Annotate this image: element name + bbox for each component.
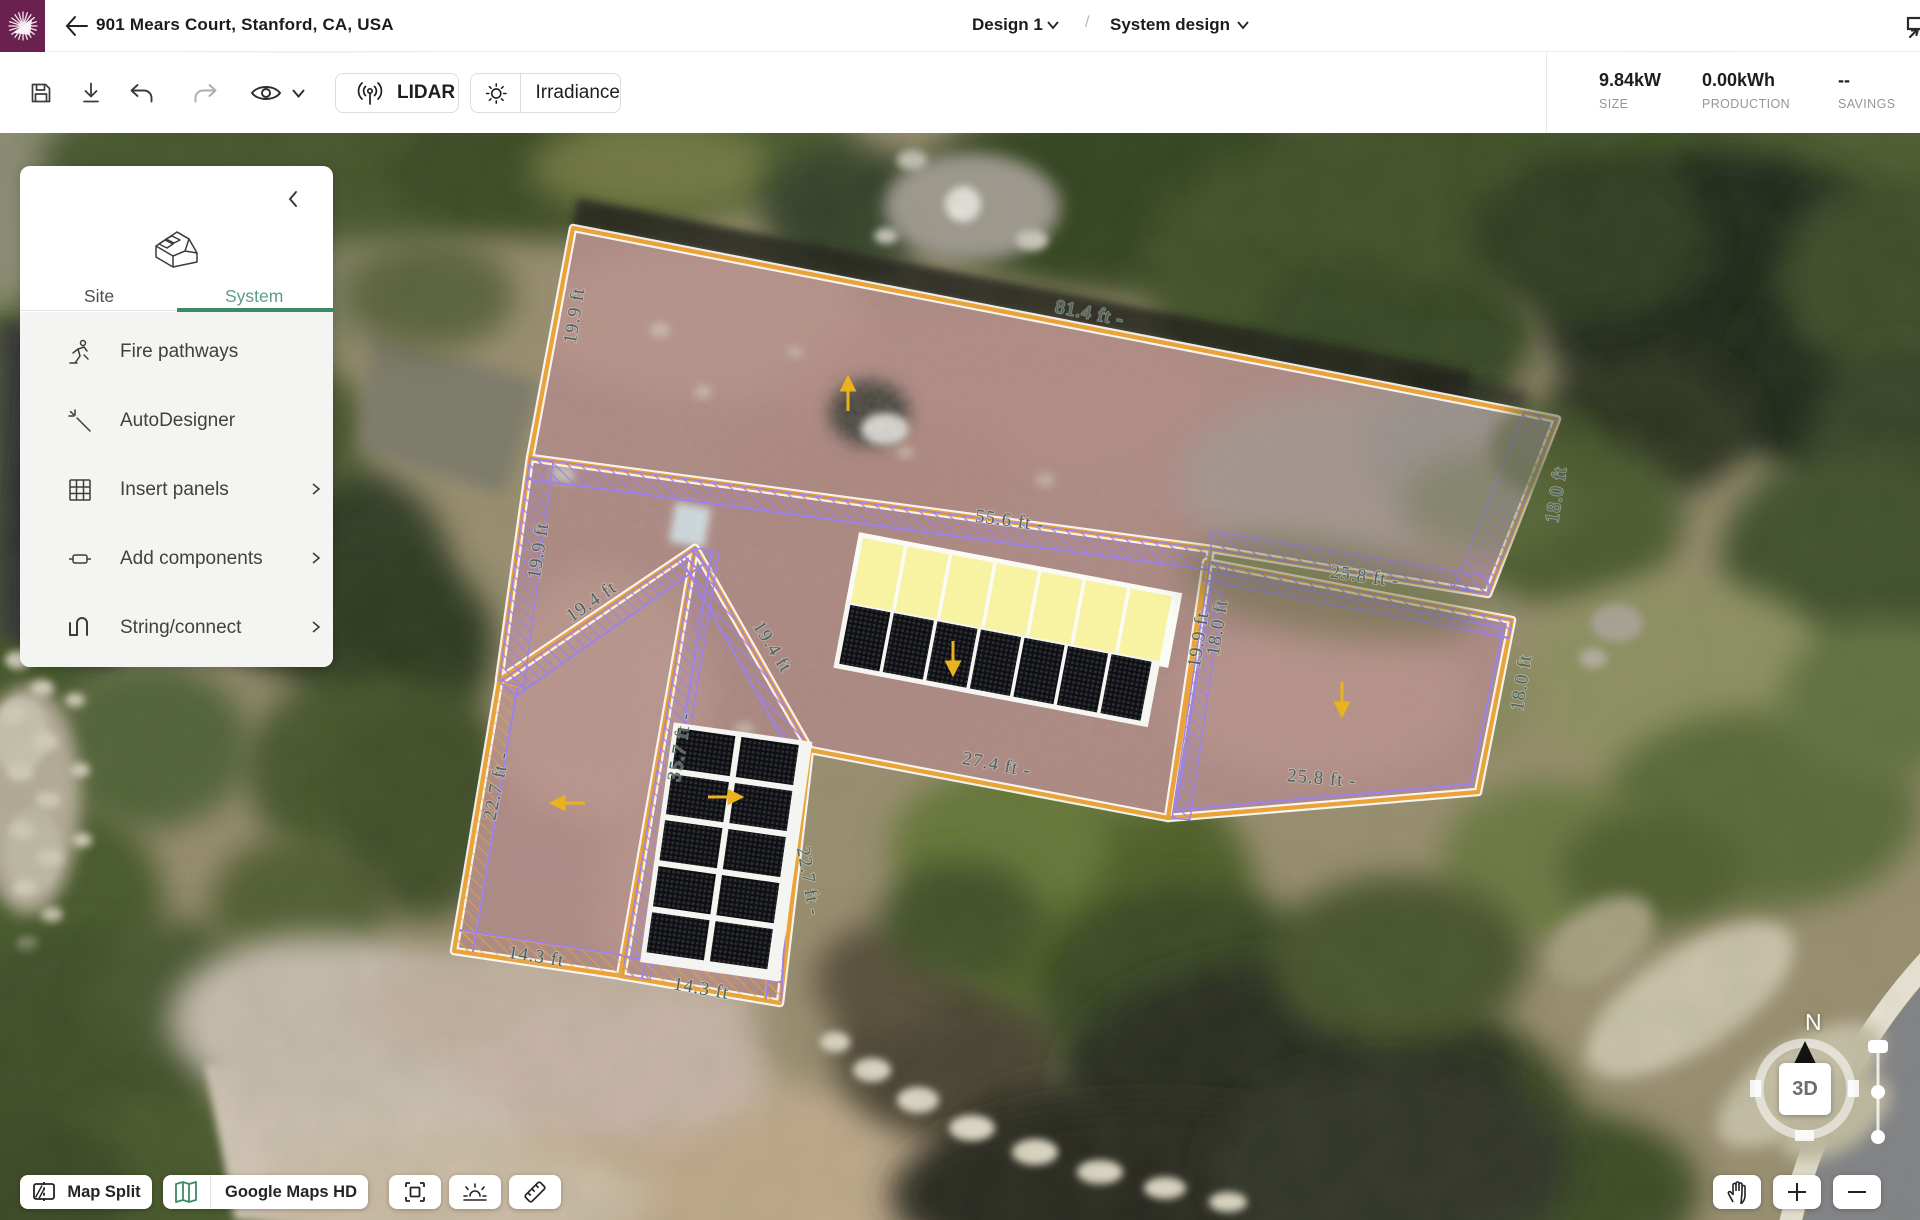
- svg-text:N: N: [1805, 1009, 1822, 1035]
